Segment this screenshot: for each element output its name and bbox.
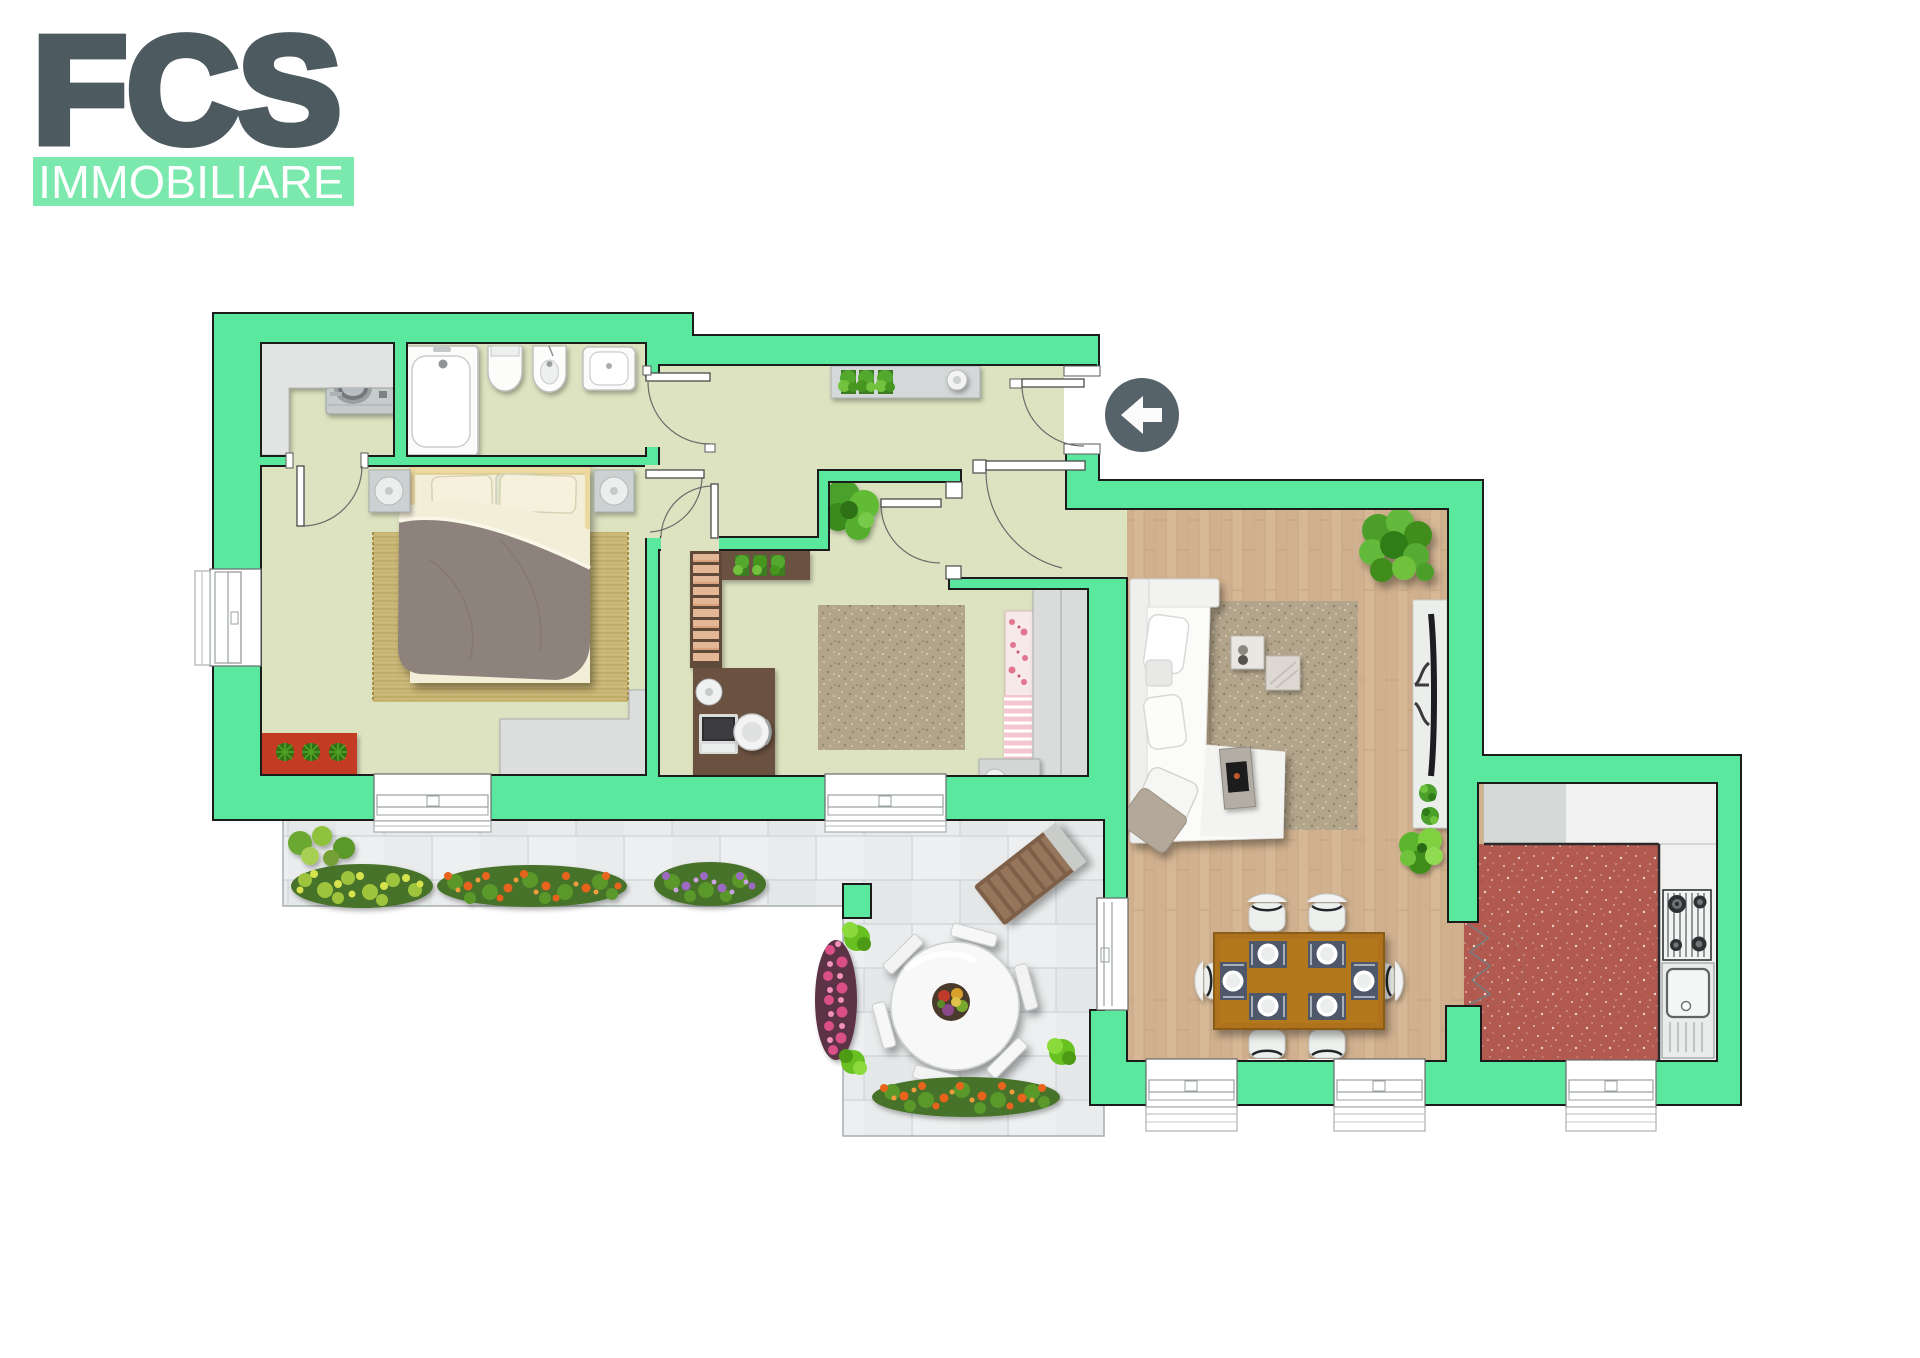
svg-text:IMMOBILIARE: IMMOBILIARE [38, 156, 344, 208]
svg-text:FCS: FCS [33, 5, 341, 174]
